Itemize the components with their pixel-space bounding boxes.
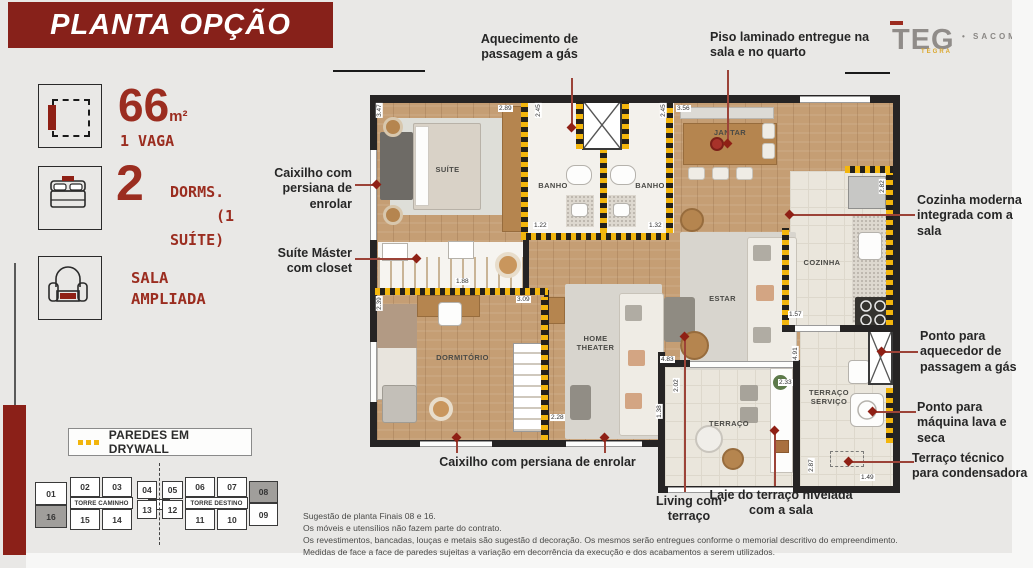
sofa-cushion-2 [756,285,774,301]
header-rule-right [845,72,890,74]
disclaimer-line-2: Os móveis e utensílios não fazem parte d… [303,523,1003,533]
legend-dash-1 [78,440,83,445]
dim-dorm-h: 2.39 [376,296,383,311]
logo-tegra: TEGRA [921,49,952,55]
sala-label-line2: AMPLIADA [131,290,206,308]
dining-chair-2 [712,167,729,180]
drywall-service-right [886,388,893,443]
right-margin [1012,0,1033,568]
suite-nightstand-top [383,117,403,137]
tower-unit-14: 14 [102,509,132,530]
kitchen-sink [858,232,882,260]
tower-unit-01: 01 [35,482,67,505]
entry-round-table [680,208,704,232]
drywall-kitchen-top [845,166,893,173]
drywall-dining-left [666,103,673,233]
dorms-icon-box [38,166,102,230]
tower-unit-16: 16 [35,505,67,528]
leader-laje [774,432,776,486]
room-label-suite: SUÍTE [420,165,475,174]
disclaimer-line-1: Sugestão de planta Finais 08 e 16. [303,511,1003,521]
dim-closet: 1.88 [455,278,470,285]
leader-aquecimento [571,78,573,125]
laundry-tub [848,360,870,384]
drywall-shaft-left [576,101,583,149]
callout-cozinha-moderna: Cozinha moderna integrada com a sala [917,193,1029,239]
dim-bath1-h: 2.45 [535,103,542,118]
dorm-side-window [370,342,377,402]
tower-unit-10: 10 [217,509,247,530]
dorm-armchair [382,385,417,423]
bed-icon [39,167,97,225]
room-label-banho2: BANHO [625,181,675,190]
duct-shaft [582,100,622,150]
callout-suite-master: Suíte Máster com closet [250,246,352,277]
tower-unit-12: 12 [162,500,183,519]
drywall-dorm-right [541,297,548,440]
dorm-wardrobe [513,343,542,432]
dining-chair-5 [762,143,775,159]
floor-plan: SUÍTE BANHO BANHO JANTAR COZINHA ESTAR D… [370,95,900,493]
dim-terrace-h: 2.02 [673,378,680,393]
dim-fridge: 2.82 [879,179,886,194]
service-shaft-x-icon [870,332,891,383]
tower-unit-02: 02 [70,477,100,497]
header-rule-left [333,70,425,72]
drywall-bath-divider [600,150,607,233]
disclaimer-line-4: Medidas de face a face de paredes sujeit… [303,547,1003,557]
drywall-legend: PAREDES EM DRYWALL [68,428,252,456]
dim-service-h: 2.87 [808,458,815,473]
disclaimer: Sugestão de planta Finais 08 e 16. Os mó… [303,511,1003,559]
room-label-jantar: JANTAR [705,128,755,137]
page: PLANTA OPÇÃO TEG TEGRA • SACOMÃ 66m² 1 V… [0,0,1033,568]
drywall-closet-bottom [375,288,548,295]
sofa-cushion-1 [753,245,771,261]
dining-chair-3 [736,167,753,180]
terrace-box [774,440,789,453]
leader-maquina [876,411,916,413]
wall-terrace-divider [793,360,800,493]
wall-right [893,95,900,493]
suite-window [370,150,377,240]
tower-unit-06: 06 [185,477,215,497]
dim-jantar-w: 3.56 [676,105,691,112]
left-accent-bar [3,405,26,555]
tower-unit-13: 13 [137,500,157,519]
suite-bench [380,132,413,200]
room-label-home-theater: HOME THEATER [568,334,623,353]
sofa-cushion-3 [753,327,771,343]
callout-ponto-aquecedor: Ponto para aquecedor de passagem a gás [920,329,1032,375]
shaft-x-icon [584,102,620,148]
title-banner: PLANTA OPÇÃO [8,2,333,48]
legend-label: PAREDES EM DRYWALL [109,428,251,456]
logo-bullet: • [962,32,968,41]
dim-ht: 2.28 [550,414,565,421]
leader-condensadora [852,461,914,463]
sala-icon-box [38,256,102,320]
dim-dorm-w: 3.09 [516,296,531,303]
dim-estar-h: 4.91 [792,346,799,361]
tower-unit-04: 04 [137,481,157,499]
floorplan-icon-highlight [48,105,56,130]
kitchen-door [795,325,840,332]
tower-axis-line [159,463,160,545]
service-shaft [868,330,893,385]
dorm-chair [438,302,462,326]
terrace-chair [695,425,723,453]
parking-label: 1 VAGA [120,132,174,150]
terrace-side-table [722,448,744,470]
dim-bath2-w: 1.32 [648,222,663,229]
drywall-kitchen-right [886,173,893,325]
dorms-label-line2: (1 [216,207,234,225]
disclaimer-line-3: Os revestimentos, bancadas, louças e met… [303,535,1003,545]
leader-piso [727,70,729,142]
leader-suite-master [355,258,417,260]
ht-cushion-2 [628,350,645,366]
area-number: 66 [118,79,169,131]
wall-terrace-left [658,352,665,493]
room-label-banho1: BANHO [528,181,578,190]
dim-kitchen: 1.57 [788,311,803,318]
dim-estar: 4.83 [660,356,675,363]
drywall-shaft-right [622,101,629,149]
legend-dash-3 [94,440,99,445]
callout-ponto-maquina: Ponto para máquina lava e seca [917,400,1029,446]
tower-unit-11: 11 [185,509,215,530]
legend-dash-2 [86,440,91,445]
tower-left-label: TORRE CAMINHO [70,497,133,509]
tower-unit-05: 05 [162,481,183,499]
suite-wardrobe [502,106,522,232]
dorms-label-line3: SUÍTE) [170,231,224,249]
area-value: 66m² [118,82,188,128]
suite-nightstand-bottom [383,205,403,225]
room-label-cozinha: COZINHA [793,258,851,267]
ht-cushion-1 [625,305,642,321]
dining-window [800,96,870,103]
dim-suite-width: 2.89 [498,105,513,112]
dorms-number: 2 [116,158,144,208]
dim-service-w: 1.49 [860,474,875,481]
callout-caixilho-bottom: Caixilho com persiana de enrolar [430,455,645,470]
sala-label-line1: SALA [131,269,168,287]
dining-chair-4 [762,123,775,139]
drywall-suite-right [521,103,528,237]
dim-bath1-w: 1.22 [533,222,548,229]
closet-shelf-2 [448,241,474,259]
dorm-blanket [377,304,417,348]
drywall-bath-bottom [521,233,669,240]
dining-chair-1 [688,167,705,180]
tower-unit-07: 07 [217,477,247,497]
dim-ht-w: 1.38 [656,404,663,419]
room-label-terraco-servico: TERRAÇO SERVIÇO [798,388,860,407]
terrace-slider [690,361,793,368]
tower-unit-09: 09 [249,503,278,526]
callout-aquecimento: Aquecimento de passagem a gás [452,32,607,63]
dorm-round-rug [429,397,453,421]
leader-aquecedor [884,351,918,353]
room-label-estar: ESTAR [695,294,750,303]
wall-closet-right [523,235,529,295]
table-flowers [710,137,724,151]
dim-bath2-h: 2.45 [660,103,667,118]
dorms-label-line1: DORMS. [170,183,224,201]
sink-1 [571,203,588,217]
callout-caixilho-left: Caixilho com persiana de enrolar [252,166,352,212]
dim-terrace-counter: 2.33 [778,379,793,386]
ht-ottoman [570,385,591,420]
ht-cushion-3 [625,393,642,409]
page-title: PLANTA OPÇÃO [50,9,291,42]
room-label-terraco: TERRAÇO [700,419,758,428]
callout-terraco-tecnico: Terraço técnico para condensadora [912,451,1033,482]
hall-round-rug [495,252,521,278]
area-unit: m² [169,108,187,125]
floorplan-icon [52,99,90,137]
leader-living [684,339,686,492]
tower-unit-03: 03 [102,477,132,497]
tower-right-label: TORRE DESTINO [185,497,248,509]
sink-2 [613,203,630,217]
tower-unit-15: 15 [70,509,100,530]
tower-unit-08: 08 [249,481,278,503]
armchair-icon [39,257,97,315]
dim-suite-height: 3.47 [376,103,383,118]
room-label-dormitorio: DORMITÓRIO [425,353,500,362]
terrace-stool-1 [740,385,758,401]
leader-cozinha [792,214,915,216]
callout-piso-laminado: Piso laminado entregue na sala e no quar… [710,30,885,61]
